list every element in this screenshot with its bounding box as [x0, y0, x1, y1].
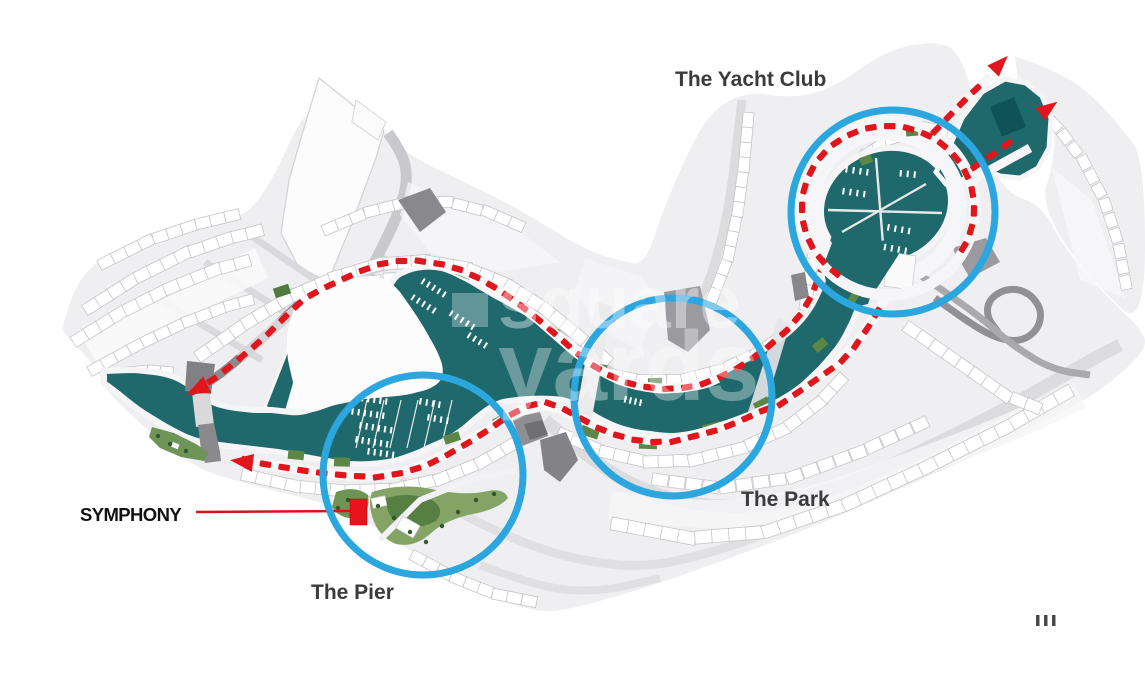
- svg-text:SYMPHONY: SYMPHONY: [80, 504, 182, 525]
- svg-text:The Pier: The Pier: [311, 581, 394, 604]
- svg-text:yards: yards: [498, 311, 760, 421]
- svg-text:The Park: The Park: [741, 488, 830, 511]
- svg-text:The Yacht Club: The Yacht Club: [675, 68, 826, 91]
